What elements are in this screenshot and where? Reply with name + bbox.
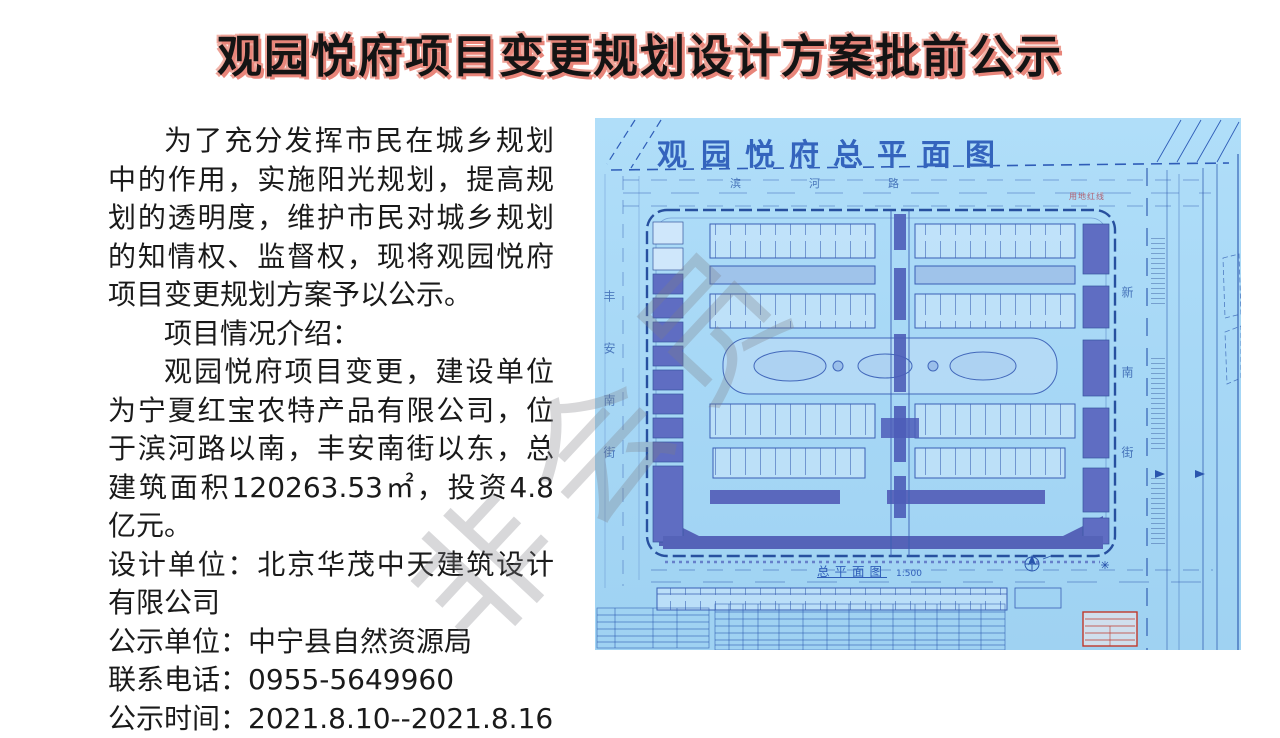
notice-design-unit: 设计单位：北京华茂中天建筑设计有限公司	[108, 546, 554, 623]
parking-hatch	[1151, 478, 1165, 548]
indicator-tables	[597, 604, 1005, 650]
dark-strip	[710, 490, 840, 504]
dark-strip	[887, 490, 1045, 504]
parking-hatch	[1151, 236, 1165, 308]
south-boundary-band	[663, 536, 1103, 549]
notice-text-block: 为了充分发挥市民在城乡规划中的作用，实施阳光规划，提高规划的透明度，维护市民对城…	[108, 122, 554, 738]
north-road-lines	[623, 180, 1211, 206]
south-building-strip	[657, 588, 1061, 610]
notice-phone: 联系电话：0955-5649960	[108, 661, 554, 700]
direction-arrows	[1155, 470, 1205, 478]
west-road-lines	[605, 174, 639, 588]
notice-publisher: 公示单位：中宁县自然资源局	[108, 623, 554, 662]
parking-hatch	[1151, 356, 1165, 451]
east-building-strip	[1083, 224, 1109, 544]
notice-paragraph-intro: 为了充分发挥市民在城乡规划中的作用，实施阳光规划，提高规划的透明度，维护市民对城…	[108, 122, 554, 315]
south-road-lines	[651, 570, 1213, 582]
title-band-lines	[607, 120, 1239, 170]
north-arrow-icon	[1025, 556, 1109, 571]
red-stamp	[1083, 612, 1137, 646]
notice-section-heading: 项目情况介绍：	[108, 315, 554, 354]
central-courtyard	[723, 338, 1057, 394]
site-plan-drawing	[595, 118, 1241, 650]
notice-slide: 观园悦府项目变更规划设计方案批前公示 为了充分发挥市民在城乡规划中的作用，实施阳…	[0, 0, 1280, 720]
notice-paragraph-project: 观园悦府项目变更，建设单位为宁夏红宝农特产品有限公司，位于滨河路以南，丰安南街以…	[108, 353, 554, 546]
page-title: 观园悦府项目变更规划设计方案批前公示	[0, 20, 1280, 85]
notice-period: 公示时间：2021.8.10--2021.8.16	[108, 700, 554, 738]
site-plan-image: 观园悦府总平面图 滨河路 用地红线 丰安南街 新南街 总平面图 1:500	[595, 118, 1241, 650]
west-building-strip	[653, 222, 683, 542]
